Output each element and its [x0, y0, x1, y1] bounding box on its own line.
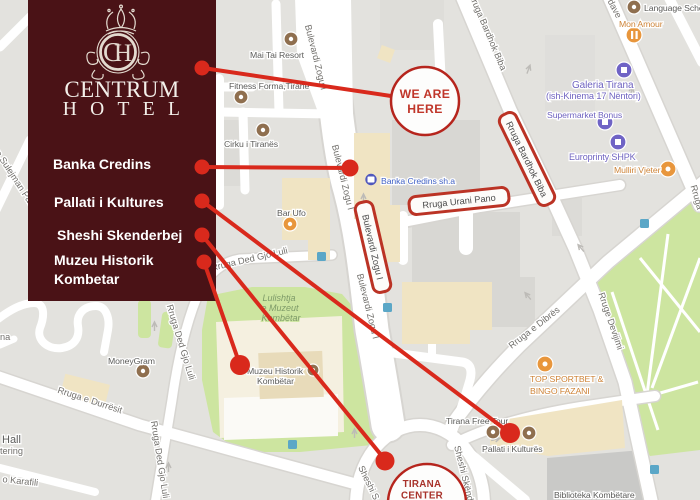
svg-text:Bar Ufo: Bar Ufo — [277, 208, 306, 218]
svg-text:Lulishtja: Lulishtja — [262, 293, 295, 303]
svg-text:Mulliri Vjeter: Mulliri Vjeter — [614, 165, 661, 175]
svg-text:Hall: Hall — [2, 434, 21, 446]
svg-text:Banka Credins: Banka Credins — [53, 156, 151, 172]
svg-text:MoneyGram: MoneyGram — [108, 356, 155, 366]
svg-text:H: H — [114, 40, 132, 67]
svg-text:na: na — [0, 332, 11, 342]
svg-text:Sheshi Skenderbej: Sheshi Skenderbej — [57, 227, 182, 243]
svg-text:Kombëtar: Kombëtar — [257, 376, 294, 386]
svg-text:(ish-Kinema 17 Nëntori): (ish-Kinema 17 Nëntori) — [546, 91, 641, 101]
svg-text:CENTER: CENTER — [401, 491, 443, 500]
svg-text:HOTEL: HOTEL — [63, 99, 193, 120]
svg-text:Muzeu Historik: Muzeu Historik — [247, 366, 304, 376]
svg-text:Kombetar: Kombetar — [54, 271, 120, 287]
svg-text:Biblioteka Kombëtare: Biblioteka Kombëtare — [554, 490, 635, 500]
svg-text:Language Scho: Language Scho — [644, 3, 700, 13]
svg-text:Supermarket Bonus: Supermarket Bonus — [547, 110, 623, 120]
svg-text:Muzeu Historik: Muzeu Historik — [54, 252, 154, 268]
svg-text:Cirku i Tiranës: Cirku i Tiranës — [224, 139, 279, 149]
svg-text:Mai Tai Resort: Mai Tai Resort — [250, 50, 305, 60]
svg-text:e Muzeut: e Muzeut — [261, 303, 299, 313]
svg-text:Mon Amour: Mon Amour — [619, 19, 663, 29]
svg-text:HERE: HERE — [407, 102, 442, 116]
svg-text:Banka Credins sh.a: Banka Credins sh.a — [381, 176, 455, 186]
svg-text:BINGO FAZANI: BINGO FAZANI — [530, 386, 590, 396]
svg-text:WE ARE: WE ARE — [400, 87, 451, 101]
svg-text:Europrinty SHPK: Europrinty SHPK — [569, 152, 636, 162]
svg-text:tering: tering — [0, 446, 23, 456]
svg-text:Galeria Tirana: Galeria Tirana — [572, 80, 634, 91]
svg-text:Pallati i Kultures: Pallati i Kultures — [54, 194, 164, 210]
svg-text:TIRANA: TIRANA — [403, 479, 442, 490]
svg-text:Pallati i Kulturës: Pallati i Kulturës — [482, 444, 543, 454]
svg-text:TOP SPORTBET &: TOP SPORTBET & — [530, 374, 604, 384]
